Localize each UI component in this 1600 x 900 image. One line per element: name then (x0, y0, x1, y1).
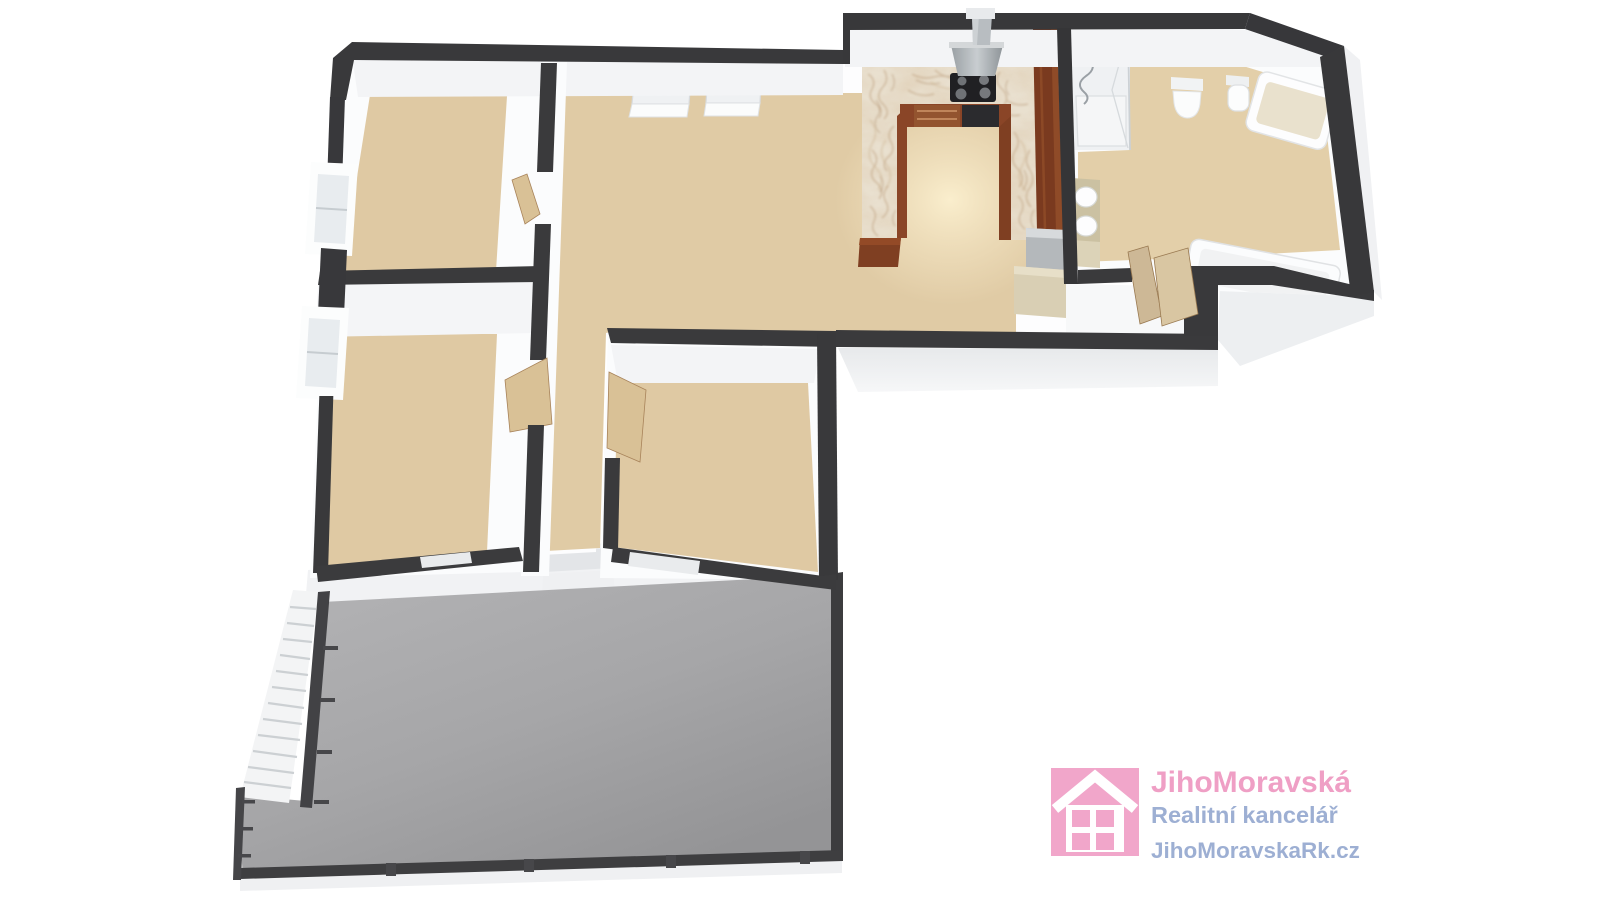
svg-text:JihoMoravská: JihoMoravská (1151, 766, 1351, 799)
svg-text:JihoMoravskaRk.cz: JihoMoravskaRk.cz (1151, 838, 1360, 863)
svg-text:Realitní kancelář: Realitní kancelář (1151, 802, 1339, 828)
